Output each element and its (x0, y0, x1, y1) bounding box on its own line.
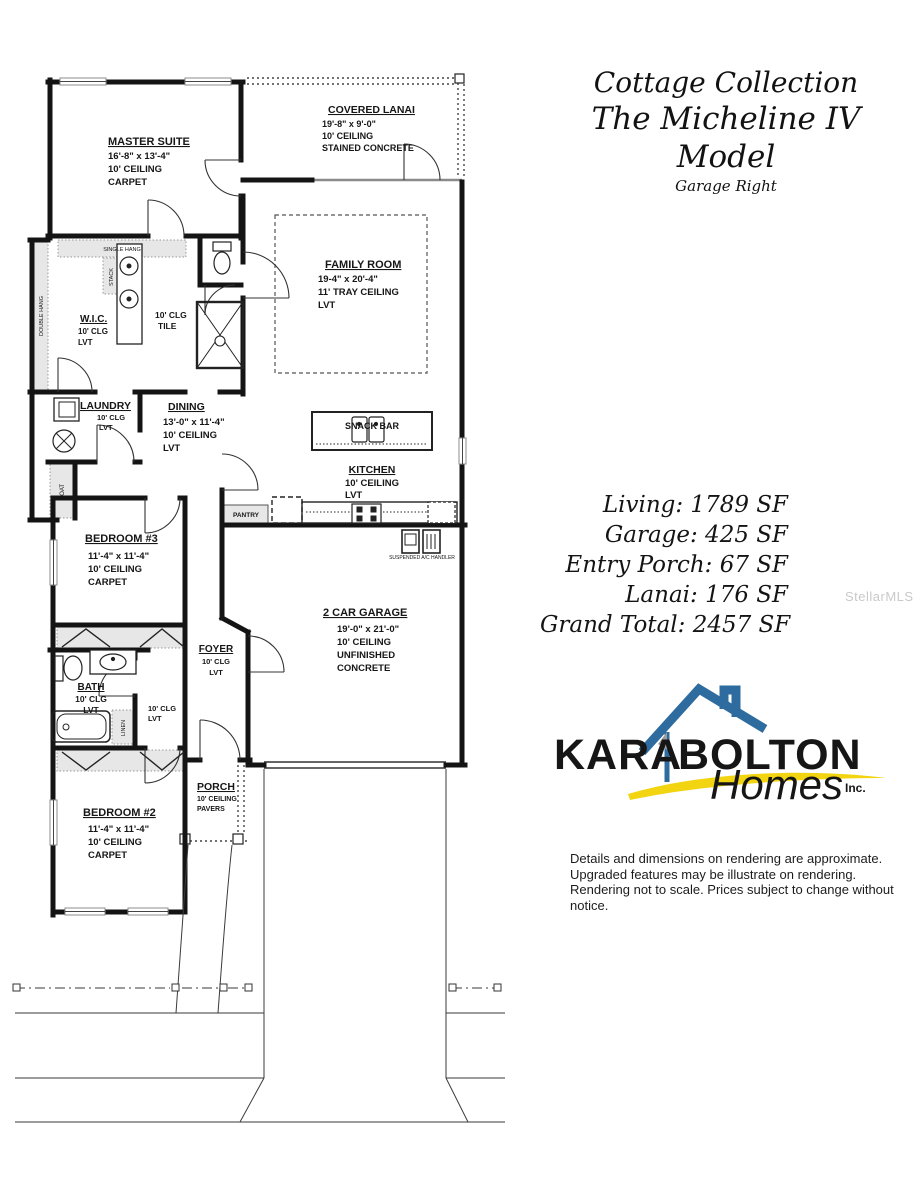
svg-text:CARPET: CARPET (88, 850, 127, 861)
svg-text:10' CLG: 10' CLG (75, 694, 107, 704)
svg-text:PAVERS: PAVERS (197, 806, 225, 813)
living-area: Living: 1789 SF (540, 490, 788, 520)
svg-text:LVT: LVT (345, 490, 362, 501)
disclaimer-line-2: Upgraded features may be illustrate on r… (570, 867, 900, 883)
svg-text:TILE: TILE (158, 321, 177, 331)
svg-text:11'-4" x 11'-4": 11'-4" x 11'-4" (88, 551, 149, 562)
disclaimer: Details and dimensions on rendering are … (570, 851, 900, 913)
model-title: The Micheline IV Model (540, 100, 912, 176)
area-summary: Living: 1789 SF Garage: 425 SF Entry Por… (540, 490, 788, 640)
fixtures (52, 242, 457, 742)
single-hang-label: SINGLE HANG (103, 247, 141, 253)
svg-text:LVT: LVT (78, 338, 93, 347)
svg-text:10' CEILING: 10' CEILING (345, 478, 399, 489)
wic-label: W.I.C. (80, 314, 107, 325)
family-room-label: FAMILY ROOM (325, 259, 401, 271)
svg-text:10' CEILING: 10' CEILING (163, 430, 217, 441)
svg-text:CARPET: CARPET (88, 577, 127, 588)
logo-homes: Homes (710, 761, 843, 808)
svg-text:19'-8" x 9'-0": 19'-8" x 9'-0" (322, 119, 376, 129)
snack-bar-label: SNACK BAR (345, 421, 400, 431)
bedroom2-label: BEDROOM #2 (83, 807, 156, 819)
dining-label: DINING (168, 401, 205, 413)
svg-text:LVT: LVT (163, 443, 180, 454)
covered-lanai-label: COVERED LANAI (328, 104, 415, 116)
disclaimer-line-3: Rendering not to scale. Prices subject t… (570, 882, 900, 913)
logo-inc: Inc. (845, 781, 866, 795)
floor-plan-sheet: MASTER SUITE 16'-8" x 13'-4" 10' CEILING… (0, 0, 919, 1200)
stack-label: STACK (109, 268, 115, 286)
master-bath-ceiling: 10' CLG (155, 310, 187, 320)
linen-label: LINEN (121, 720, 127, 736)
coat-label: COAT (60, 484, 66, 501)
foyer-label: FOYER (199, 644, 234, 655)
svg-text:UNFINISHED: UNFINISHED (337, 650, 395, 661)
svg-text:10' CLG: 10' CLG (202, 657, 230, 666)
bath-label: BATH (77, 682, 104, 693)
title-block: Cottage Collection The Micheline IV Mode… (540, 66, 912, 196)
disclaimer-line-1: Details and dimensions on rendering are … (570, 851, 900, 867)
svg-text:10' CEILING: 10' CEILING (88, 564, 142, 575)
svg-text:STAINED CONCRETE: STAINED CONCRETE (322, 143, 414, 153)
double-hang-label: DOUBLE HANG (39, 296, 45, 336)
laundry-label: LAUNDRY (80, 400, 131, 412)
entry-porch-area: Entry Porch: 67 SF (540, 550, 788, 580)
svg-text:10' CEILING: 10' CEILING (88, 837, 142, 848)
grand-total-area: Grand Total: 2457 SF (540, 610, 788, 640)
svg-text:LVT: LVT (148, 714, 162, 723)
bedroom3-label: BEDROOM #3 (85, 533, 158, 545)
svg-text:16'-8" x 13'-4": 16'-8" x 13'-4" (108, 151, 170, 162)
lanai-outline (185, 78, 464, 841)
collection-title: Cottage Collection (540, 66, 912, 100)
garage-door (264, 762, 446, 768)
svg-text:10' CEILING: 10' CEILING (322, 131, 373, 141)
svg-text:19-4" x 20'-4": 19-4" x 20'-4" (318, 274, 378, 285)
svg-text:LVT: LVT (99, 423, 113, 432)
svg-text:10' CLG: 10' CLG (97, 413, 125, 422)
svg-text:19'-0" x 21'-0": 19'-0" x 21'-0" (337, 624, 399, 635)
pantry-label: PANTRY (233, 512, 260, 519)
svg-text:11'-4" x 11'-4": 11'-4" x 11'-4" (88, 824, 149, 835)
variant-subtitle: Garage Right (540, 176, 912, 196)
master-suite-label: MASTER SUITE (108, 136, 190, 148)
lanai-area: Lanai: 176 SF (540, 580, 788, 610)
svg-text:LVT: LVT (83, 705, 99, 715)
svg-text:10' CLG: 10' CLG (78, 327, 108, 336)
property-markers (13, 984, 501, 991)
svg-text:10' CEILING: 10' CEILING (108, 164, 162, 175)
svg-text:13'-0" x 11'-4": 13'-0" x 11'-4" (163, 417, 225, 428)
logo-kara: KARA (554, 731, 682, 779)
hall-ceiling: 10' CLG (148, 704, 176, 713)
porch-label: PORCH (197, 781, 235, 793)
walls (30, 80, 465, 915)
stellar-mls-watermark: StellarMLS (845, 589, 914, 604)
svg-text:CARPET: CARPET (108, 177, 147, 188)
garage-label: 2 CAR GARAGE (323, 607, 407, 619)
kitchen-label: KITCHEN (349, 464, 396, 476)
column-markers (180, 74, 464, 844)
svg-text:11' TRAY CEILING: 11' TRAY CEILING (318, 287, 399, 298)
floor-plan-drawing: MASTER SUITE 16'-8" x 13'-4" 10' CEILING… (0, 0, 540, 1200)
site-lines (15, 769, 505, 1122)
svg-text:LVT: LVT (318, 300, 335, 311)
svg-text:CONCRETE: CONCRETE (337, 663, 390, 674)
garage-area: Garage: 425 SF (540, 520, 788, 550)
svg-text:10' CEILING: 10' CEILING (197, 796, 237, 803)
closet-strips (33, 240, 268, 771)
svg-text:LVT: LVT (209, 668, 223, 677)
kara-bolton-homes-logo: KARA BOLTON Homes Inc. (552, 672, 912, 817)
svg-text:10' CEILING: 10' CEILING (337, 637, 391, 648)
ac-handler-label: SUSPENDED A/C HANDLER (389, 555, 455, 561)
